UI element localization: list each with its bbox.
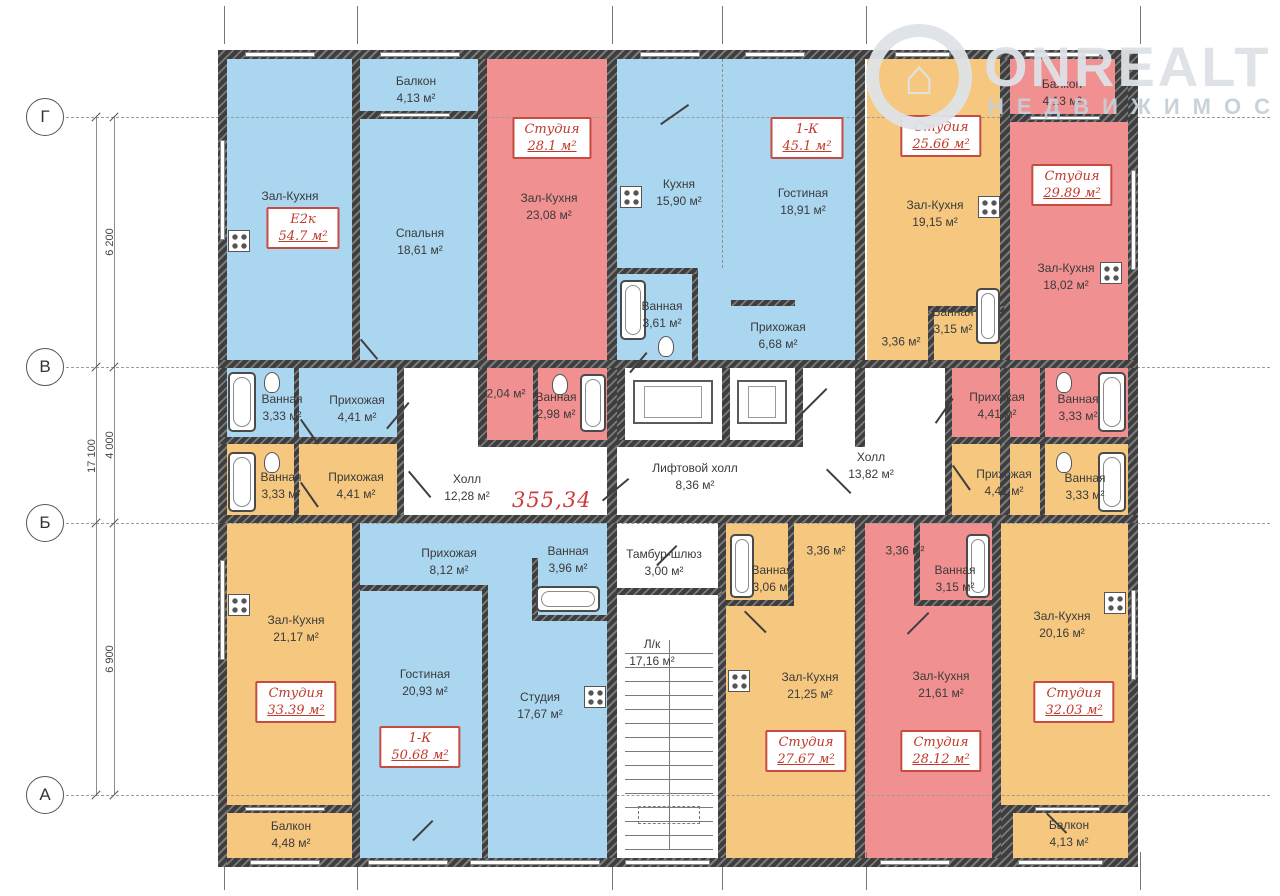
apartment-total-area: 45.1 м²	[782, 138, 831, 155]
wall	[532, 615, 612, 621]
room-area: 18,91 м²	[778, 202, 828, 219]
room-label: Гостиная20,93 м²	[400, 666, 450, 700]
dimension-label: 17 100	[86, 439, 98, 473]
room-label: Гостиная18,91 м²	[778, 185, 828, 219]
room-name: Прихожая	[750, 319, 806, 336]
apartment-badge: Студия28.1 м²	[512, 117, 591, 159]
room-name: Зал-Кухня	[1033, 608, 1090, 625]
room-name: Холл	[848, 449, 894, 466]
apartment-total-area: 50.68 м²	[391, 747, 448, 764]
room-label: 2,04 м²	[487, 386, 526, 403]
wall	[952, 437, 1128, 444]
zoning-dash-line	[722, 59, 723, 268]
room-name: Ванная	[932, 304, 973, 321]
stove-icon	[620, 186, 642, 208]
room-area: 17,67 м²	[517, 706, 563, 723]
room-label: Ванная3,33 м²	[1057, 391, 1098, 425]
room-label: Прихожая8,12 м²	[421, 545, 477, 579]
total-area-value: 355,34	[512, 488, 591, 512]
bathtub	[228, 452, 256, 512]
room-area: 13,82 м²	[848, 466, 894, 483]
apartment-total-area: 27.67 м²	[777, 751, 834, 768]
room-name: Зал-Кухня	[906, 197, 963, 214]
axis-row-marker: А	[26, 776, 64, 814]
floor-plan-canvas: Зал-Кухня24,22 м²Балкон4,13 м²Спальня18,…	[0, 0, 1280, 896]
room-area: 3,33 м²	[1064, 487, 1105, 504]
room-name: Зал-Кухня	[781, 669, 838, 686]
wall	[218, 515, 1138, 523]
room-name: Балкон	[396, 73, 436, 90]
room-label: Зал-Кухня23,08 м²	[520, 190, 577, 224]
bathtub	[536, 586, 600, 612]
axis-row-label: Б	[39, 513, 50, 533]
window	[640, 52, 700, 57]
room-area: 3,36 м²	[886, 543, 925, 560]
room-area: 4,41 м²	[329, 409, 385, 426]
wall	[607, 523, 617, 858]
apartment-type: Студия	[912, 734, 969, 751]
room-name: Ванная	[1064, 470, 1105, 487]
room-name: Кухня	[656, 176, 702, 193]
wall	[607, 59, 617, 523]
axis-row-label: Г	[40, 107, 49, 127]
apartment-type: Студия	[777, 734, 834, 751]
room-area: 4,13 м²	[396, 90, 436, 107]
axis-row-marker: В	[26, 348, 64, 386]
room-area: 3,00 м²	[626, 563, 702, 580]
apartment-total-area: 33.39 м²	[267, 702, 324, 719]
apartment-type: 1-К	[391, 730, 448, 747]
room-label: Прихожая4,41 м²	[328, 469, 384, 503]
dimension-label: 6 200	[104, 228, 116, 256]
room-area: 20,93 м²	[400, 683, 450, 700]
room-name: Балкон	[1049, 817, 1089, 834]
apartment-type: Студия	[912, 119, 969, 136]
window	[745, 52, 805, 57]
apartment-type: Студия	[1045, 685, 1102, 702]
room-area: 15,90 м²	[656, 193, 702, 210]
room-label: Спальня18,61 м²	[396, 225, 444, 259]
stove-icon	[584, 686, 606, 708]
room-name: Зал-Кухня	[520, 190, 577, 207]
room-name: Холл	[444, 471, 490, 488]
room-name: Ванная	[934, 562, 975, 579]
room-label: Ванная3,33 м²	[261, 391, 302, 425]
room-name: Гостиная	[778, 185, 828, 202]
apartment-total-area: 28.1 м²	[524, 138, 579, 155]
room-area: 21,61 м²	[912, 685, 969, 702]
wall	[617, 268, 697, 274]
room-area: 3,15 м²	[934, 579, 975, 596]
bathtub	[730, 534, 754, 598]
room-area: 4,13 м²	[1049, 834, 1089, 851]
wall	[914, 523, 920, 603]
stove-icon	[228, 230, 250, 252]
room-label: Зал-Кухня21,61 м²	[912, 668, 969, 702]
room-area: 4,41 м²	[969, 406, 1025, 423]
apartment-type: Е2к	[278, 211, 327, 228]
wall	[731, 300, 795, 306]
room-label: Ванная3,15 м²	[932, 304, 973, 338]
window	[1018, 860, 1103, 865]
room-name: Гостиная	[400, 666, 450, 683]
axis-col-tick	[1140, 6, 1141, 44]
room-label: Зал-Кухня19,15 м²	[906, 197, 963, 231]
elevator-car	[633, 380, 713, 424]
window	[220, 140, 225, 240]
window	[380, 113, 450, 117]
room-area: 3,06 м²	[751, 579, 792, 596]
window	[470, 860, 600, 865]
room-area: 2,04 м²	[487, 386, 526, 403]
room-area: 3,33 м²	[1057, 408, 1098, 425]
bathtub	[1098, 372, 1126, 432]
stove-icon	[728, 670, 750, 692]
room-label: Балкон4,13 м²	[1042, 76, 1082, 110]
window	[1030, 116, 1100, 120]
wall	[218, 437, 404, 444]
room-label: Ванная2,98 м²	[535, 389, 576, 423]
apartment-total-area: 25.66 м²	[912, 136, 969, 153]
room-name: Ванная	[261, 391, 302, 408]
toilet	[1056, 372, 1072, 393]
window	[880, 860, 950, 865]
apartment-total-area: 54.7 м²	[278, 228, 327, 245]
wall	[397, 368, 404, 515]
room-label: Прихожая6,68 м²	[750, 319, 806, 353]
room-name: Тамбур-шлюз	[626, 546, 702, 563]
wall	[617, 588, 722, 595]
room-name: Студия	[517, 689, 563, 706]
apartment-badge: Студия32.03 м²	[1033, 681, 1114, 723]
wall	[726, 600, 794, 606]
room-name: Балкон	[271, 818, 311, 835]
wall	[1040, 368, 1045, 437]
room-area: 17,16 м²	[629, 653, 675, 670]
room-label: Прихожая4,41 м²	[969, 389, 1025, 423]
room-name: Зал-Кухня	[261, 188, 318, 205]
stove-icon	[978, 196, 1000, 218]
axis-row-marker: Б	[26, 504, 64, 542]
wall	[945, 368, 952, 515]
apartment-badge: Студия29.89 м²	[1031, 164, 1112, 206]
toilet	[264, 372, 280, 393]
room-area: 4,48 м²	[271, 835, 311, 852]
wall	[692, 268, 698, 364]
room-name: Зал-Кухня	[1037, 260, 1094, 277]
wall	[795, 368, 803, 440]
room-name: Ванная	[260, 469, 301, 486]
room-area: 4,13 м²	[1042, 93, 1082, 110]
axis-row-marker: Г	[26, 98, 64, 136]
apartment-type: Студия	[524, 121, 579, 138]
room-name: Зал-Кухня	[912, 668, 969, 685]
room-area: 19,15 м²	[906, 214, 963, 231]
room-area: 8,36 м²	[652, 477, 737, 494]
room-label: Балкон4,13 м²	[1049, 817, 1089, 851]
apartment-badge: 1-К45.1 м²	[770, 117, 843, 159]
wall	[352, 523, 360, 858]
bathtub	[228, 372, 256, 432]
stove-icon	[1104, 592, 1126, 614]
wall	[1000, 59, 1010, 523]
room-label: Прихожая4,41 м²	[976, 466, 1032, 500]
bathtub	[580, 374, 606, 432]
room-area: 8,12 м²	[421, 562, 477, 579]
window	[895, 52, 950, 57]
room-label: Лифтовой холл8,36 м²	[652, 460, 737, 494]
toilet	[658, 336, 674, 357]
axis-col-tick	[722, 6, 723, 44]
room-label: 3,36 м²	[886, 543, 925, 560]
wall	[218, 360, 1138, 368]
apartment-badge: Студия27.67 м²	[765, 730, 846, 772]
room-area: 4,41 м²	[328, 486, 384, 503]
apartment-badge: Студия25.66 м²	[900, 115, 981, 157]
room-area: 21,25 м²	[781, 686, 838, 703]
room-label: Студия17,67 м²	[517, 689, 563, 723]
room-name: Прихожая	[329, 392, 385, 409]
wall	[855, 523, 865, 858]
room-label: Ванная3,33 м²	[260, 469, 301, 503]
window	[1025, 52, 1100, 57]
room-label: Зал-Кухня18,02 м²	[1037, 260, 1094, 294]
door-swing	[408, 471, 431, 498]
wall	[1040, 444, 1045, 515]
room-area: 3,61 м²	[641, 315, 682, 332]
wall	[617, 368, 625, 440]
wall	[352, 59, 360, 360]
room-name: Спальня	[396, 225, 444, 242]
axis-row-label: В	[39, 357, 50, 377]
wall	[914, 600, 992, 606]
room-label: 3,36 м²	[807, 543, 846, 560]
room-area: 3,15 м²	[932, 321, 973, 338]
room-name: Л/к	[629, 636, 675, 653]
window	[250, 860, 320, 865]
wall	[480, 440, 610, 447]
window	[245, 807, 325, 811]
room-label: Холл13,82 м²	[848, 449, 894, 483]
room-label: Балкон4,13 м²	[396, 73, 436, 107]
elevator-car	[737, 380, 787, 424]
room-name: Ванная	[535, 389, 576, 406]
room-area: 20,16 м²	[1033, 625, 1090, 642]
axis-row-label: А	[39, 785, 50, 805]
room-name: Прихожая	[976, 466, 1032, 483]
room-name: Балкон	[1042, 76, 1082, 93]
wall	[482, 590, 488, 858]
room-name: Ванная	[641, 298, 682, 315]
room-area: 3,36 м²	[807, 543, 846, 560]
room-name: Прихожая	[328, 469, 384, 486]
window	[380, 52, 460, 57]
apartment-total-area: 28.12 м²	[912, 751, 969, 768]
apartment-badge: 1-К50.68 м²	[379, 726, 460, 768]
room-area: 3,36 м²	[882, 334, 921, 351]
wall	[718, 523, 726, 858]
stove-icon	[1100, 262, 1122, 284]
wall	[360, 585, 488, 591]
room-area: 21,17 м²	[267, 629, 324, 646]
window	[1035, 807, 1100, 811]
window	[625, 860, 710, 865]
axis-col-tick	[612, 6, 613, 44]
window	[1131, 170, 1136, 270]
room-area: 3,33 м²	[260, 486, 301, 503]
room-area: 2,98 м²	[535, 406, 576, 423]
room-label: 3,36 м²	[882, 334, 921, 351]
window	[368, 860, 448, 865]
wall	[722, 368, 730, 440]
apartment-badge: Студия28.12 м²	[900, 730, 981, 772]
room-area: 3,33 м²	[261, 408, 302, 425]
apartment-type: Студия	[267, 685, 324, 702]
room-area: 6,68 м²	[750, 336, 806, 353]
wall	[855, 59, 865, 447]
room-name: Прихожая	[421, 545, 477, 562]
room-label: Тамбур-шлюз3,00 м²	[626, 546, 702, 580]
apartment-total-area: 29.89 м²	[1043, 185, 1100, 202]
axis-grid-line	[66, 523, 1270, 524]
room-label: Балкон4,48 м²	[271, 818, 311, 852]
room-label: Холл12,28 м²	[444, 471, 490, 505]
room-name: Зал-Кухня	[267, 612, 324, 629]
room-name: Прихожая	[969, 389, 1025, 406]
dimension-label: 4 000	[104, 431, 116, 459]
dimension-label: 6 900	[104, 645, 116, 673]
wall	[992, 523, 1001, 858]
room-area: 18,61 м²	[396, 242, 444, 259]
room-area: 18,02 м²	[1037, 277, 1094, 294]
door-swing	[802, 388, 827, 413]
window	[220, 560, 225, 660]
room-name: Ванная	[1057, 391, 1098, 408]
room-label: Ванная3,06 м²	[751, 562, 792, 596]
bathtub	[976, 288, 1000, 344]
axis-col-tick	[357, 6, 358, 44]
window	[1131, 590, 1136, 680]
apartment-badge: Студия33.39 м²	[255, 681, 336, 723]
room-area: 3,96 м²	[547, 560, 588, 577]
room-label: Ванная3,61 м²	[641, 298, 682, 332]
apartment-badge: Е2к54.7 м²	[266, 207, 339, 249]
room-name: Ванная	[751, 562, 792, 579]
axis-col-tick	[224, 6, 225, 44]
apartment-type: 1-К	[782, 121, 831, 138]
room-area: 4,41 м²	[976, 483, 1032, 500]
room-area: 23,08 м²	[520, 207, 577, 224]
room-label: Л/к17,16 м²	[629, 636, 675, 670]
room-label: Прихожая4,41 м²	[329, 392, 385, 426]
room-label: Ванная3,33 м²	[1064, 470, 1105, 504]
room-area: 12,28 м²	[444, 488, 490, 505]
room-label: Зал-Кухня20,16 м²	[1033, 608, 1090, 642]
room-label: Ванная3,96 м²	[547, 543, 588, 577]
window	[245, 52, 315, 57]
room-name: Ванная	[547, 543, 588, 560]
wall	[617, 440, 803, 447]
wall	[1001, 805, 1013, 858]
stove-icon	[228, 594, 250, 616]
room-label: Зал-Кухня21,25 м²	[781, 669, 838, 703]
room-label: Зал-Кухня21,17 м²	[267, 612, 324, 646]
apartment-total-area: 32.03 м²	[1045, 702, 1102, 719]
room-name: Лифтовой холл	[652, 460, 737, 477]
staircase	[625, 640, 713, 850]
axis-col-tick	[1140, 852, 1141, 890]
room-label: Кухня15,90 м²	[656, 176, 702, 210]
axis-col-tick	[866, 6, 867, 44]
wall	[1115, 59, 1128, 122]
room-label: Ванная3,15 м²	[934, 562, 975, 596]
apartment-type: Студия	[1043, 168, 1100, 185]
